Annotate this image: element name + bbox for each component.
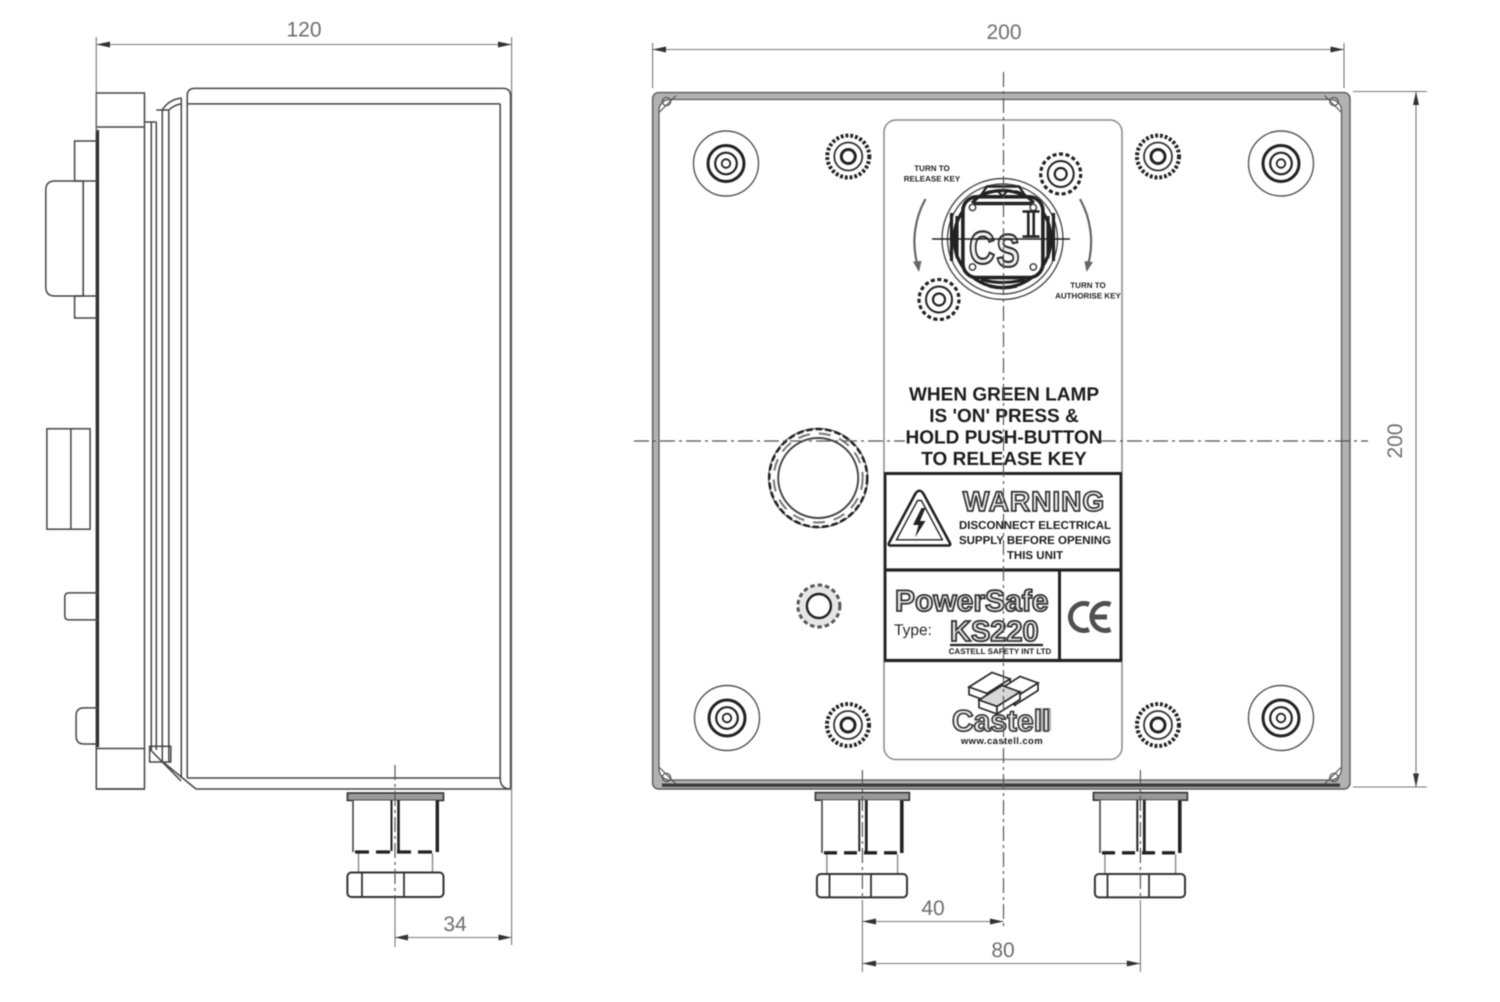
svg-text:DISCONNECT ELECTRICAL: DISCONNECT ELECTRICAL xyxy=(959,520,1111,532)
svg-text:www.castell.com: www.castell.com xyxy=(960,736,1043,747)
svg-text:WHEN GREEN LAMP: WHEN GREEN LAMP xyxy=(909,385,1099,406)
svg-text:KS220: KS220 xyxy=(950,616,1039,648)
svg-text:TURN TO: TURN TO xyxy=(1070,281,1105,290)
svg-text:200: 200 xyxy=(1384,423,1407,458)
svg-text:TO RELEASE KEY: TO RELEASE KEY xyxy=(921,449,1087,470)
svg-text:120: 120 xyxy=(286,19,321,42)
svg-text:TURN TO: TURN TO xyxy=(914,164,949,173)
svg-text:RELEASE KEY: RELEASE KEY xyxy=(904,175,961,184)
svg-text:S: S xyxy=(997,225,1020,277)
svg-text:Type:: Type: xyxy=(894,622,932,639)
svg-text:200: 200 xyxy=(986,21,1021,44)
svg-text:34: 34 xyxy=(443,913,467,936)
svg-text:Castell: Castell xyxy=(952,705,1050,738)
svg-text:IS 'ON' PRESS &: IS 'ON' PRESS & xyxy=(929,406,1079,427)
svg-text:SUPPLY BEFORE OPENING: SUPPLY BEFORE OPENING xyxy=(959,535,1111,547)
svg-text:80: 80 xyxy=(991,939,1014,962)
svg-text:AUTHORISE KEY: AUTHORISE KEY xyxy=(1055,292,1121,301)
svg-text:CASTELL SAFETY INT LTD: CASTELL SAFETY INT LTD xyxy=(949,647,1052,656)
svg-text:40: 40 xyxy=(921,897,944,920)
svg-text:PowerSafe: PowerSafe xyxy=(895,585,1048,618)
svg-text:WARNING: WARNING xyxy=(963,486,1105,517)
svg-text:C: C xyxy=(969,222,995,274)
svg-text:THIS UNIT: THIS UNIT xyxy=(1007,550,1063,562)
